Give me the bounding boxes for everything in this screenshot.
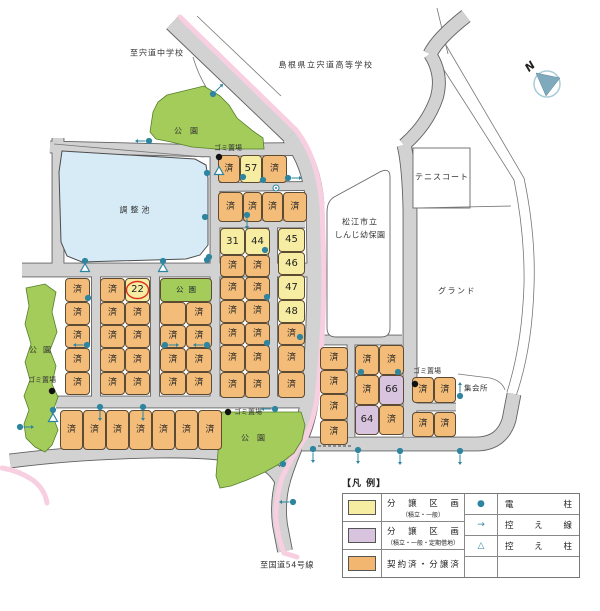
plot-済: 済 bbox=[245, 372, 270, 398]
legend-table: 分譲区画 （積立・一般） 分譲区画 （積立・一般・定期借地） 契約済・分譲済 bbox=[342, 493, 580, 578]
plot-46: 46 bbox=[278, 252, 305, 275]
plot-済: 済 bbox=[65, 302, 90, 325]
plot-済: 済 bbox=[379, 345, 404, 375]
legend-row-utility-pole: ● 電柱 bbox=[465, 494, 579, 515]
plot-31: 31 bbox=[220, 228, 245, 255]
swatch-available-plot bbox=[348, 500, 376, 515]
legend-label-available: 分譲区画 bbox=[387, 497, 459, 509]
swatch-sold-plot bbox=[348, 556, 376, 571]
plot-済: 済 bbox=[160, 372, 186, 395]
plot-済: 済 bbox=[125, 372, 150, 395]
plot-64: 64 bbox=[355, 405, 379, 435]
plot-済: 済 bbox=[434, 412, 456, 437]
plot-済: 済 bbox=[220, 277, 245, 300]
plot-済: 済 bbox=[160, 325, 186, 348]
plot-済: 済 bbox=[125, 325, 150, 348]
plot-済: 済 bbox=[175, 410, 198, 450]
plot-66: 66 bbox=[379, 375, 404, 405]
plot-済: 済 bbox=[186, 348, 212, 372]
plot-済: 済 bbox=[218, 192, 243, 222]
legend: 【凡 例】 分譲区画 （積立・一般） 分譲区画 （積立・一般・定期借地） bbox=[342, 476, 580, 578]
plot-済: 済 bbox=[262, 192, 283, 222]
legend-label-leasehold: 分譲区画 bbox=[387, 525, 459, 537]
plot-済: 済 bbox=[320, 420, 348, 445]
plot-済: 済 bbox=[100, 372, 125, 395]
plot-済: 済 bbox=[412, 377, 434, 403]
plot-47: 47 bbox=[278, 275, 305, 300]
plot-44: 44 bbox=[245, 228, 270, 255]
plot-済: 済 bbox=[152, 410, 175, 450]
plot-45: 45 bbox=[278, 228, 305, 252]
plot-済: 済 bbox=[245, 255, 270, 277]
plot-済: 済 bbox=[245, 277, 270, 300]
stay-pole-icon: △ bbox=[465, 536, 498, 556]
plot-公園: 公園 bbox=[160, 278, 212, 302]
plot-済: 済 bbox=[278, 345, 305, 372]
plot-48: 48 bbox=[278, 300, 305, 323]
plot-済: 済 bbox=[278, 323, 305, 345]
legend-row-sold: 契約済・分譲済 bbox=[343, 550, 464, 577]
plot-済: 済 bbox=[245, 323, 270, 345]
plot-済: 済 bbox=[355, 345, 379, 375]
plot-済: 済 bbox=[220, 323, 245, 345]
plot-済: 済 bbox=[186, 325, 212, 348]
legend-row-available: 分譲区画 （積立・一般） bbox=[343, 494, 464, 522]
plot-済: 済 bbox=[245, 300, 270, 323]
plot-済: 済 bbox=[320, 394, 348, 420]
plot-済: 済 bbox=[320, 370, 348, 394]
plot-22: 22 bbox=[125, 278, 150, 302]
plot-済: 済 bbox=[262, 155, 287, 183]
plot-済: 済 bbox=[160, 348, 186, 372]
utility-pole-icon: ● bbox=[465, 494, 498, 514]
plot-済: 済 bbox=[283, 192, 307, 222]
plot-済: 済 bbox=[220, 345, 245, 372]
plot-済: 済 bbox=[434, 377, 456, 403]
plot-57: 57 bbox=[240, 155, 262, 183]
plot-済: 済 bbox=[412, 412, 434, 437]
legend-label-sold: 契約済・分譲済 bbox=[387, 558, 459, 570]
plot-済: 済 bbox=[245, 345, 270, 372]
plot-済: 済 bbox=[220, 372, 245, 398]
plot-済: 済 bbox=[65, 372, 90, 395]
plot-済: 済 bbox=[100, 278, 125, 302]
plot-済: 済 bbox=[106, 410, 129, 450]
plot-済: 済 bbox=[125, 302, 150, 325]
plot-済: 済 bbox=[218, 155, 240, 183]
swatch-leasehold-plot bbox=[348, 528, 376, 543]
legend-title: 【凡 例】 bbox=[342, 476, 580, 489]
plot-済: 済 bbox=[125, 348, 150, 372]
plot-済: 済 bbox=[198, 410, 222, 450]
plot-済: 済 bbox=[100, 325, 125, 348]
plot-済: 済 bbox=[100, 348, 125, 372]
plot-済: 済 bbox=[65, 278, 90, 302]
plot-済: 済 bbox=[278, 372, 305, 398]
legend-row-stay-pole: △ 控え柱 bbox=[465, 536, 579, 557]
plot-済: 済 bbox=[320, 347, 348, 370]
plot-済: 済 bbox=[220, 300, 245, 323]
plot-済: 済 bbox=[129, 410, 152, 450]
subdivision-map: 済57済済済済済3144済済済済済済済済済済済済45464748済済済済済済済済… bbox=[0, 0, 600, 611]
plot-済: 済 bbox=[379, 405, 404, 435]
plot-済: 済 bbox=[186, 372, 212, 395]
plot-済: 済 bbox=[65, 348, 90, 372]
plot-blank bbox=[160, 302, 186, 325]
plot-済: 済 bbox=[83, 410, 106, 450]
plot-済: 済 bbox=[243, 192, 262, 222]
stay-wire-icon: → bbox=[465, 515, 498, 535]
plot-済: 済 bbox=[65, 325, 90, 348]
legend-row-leasehold: 分譲区画 （積立・一般・定期借地） bbox=[343, 522, 464, 550]
plot-済: 済 bbox=[60, 410, 83, 450]
plot-済: 済 bbox=[186, 302, 212, 325]
legend-row-stay-wire: → 控え線 bbox=[465, 515, 579, 536]
plot-済: 済 bbox=[100, 302, 125, 325]
plot-済: 済 bbox=[220, 255, 245, 277]
legend-row-empty bbox=[465, 557, 579, 577]
plot-済: 済 bbox=[355, 375, 379, 405]
